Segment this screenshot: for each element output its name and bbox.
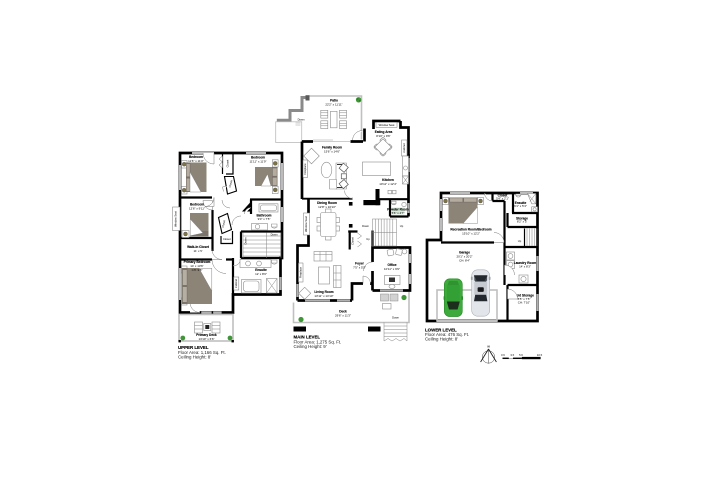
svg-text:Fireplace: Fireplace (299, 266, 303, 278)
svg-text:N: N (487, 345, 489, 349)
svg-text:22'2" x 11'11": 22'2" x 11'11" (325, 103, 342, 107)
svg-text:7'5" x 5'5": 7'5" x 5'5" (353, 266, 366, 270)
svg-text:Up: Up (400, 224, 404, 228)
svg-text:Window Seat: Window Seat (379, 123, 395, 127)
svg-text:5'6" x 4'7": 5'6" x 4'7" (392, 211, 405, 215)
svg-text:13'10" x 6'6": 13'10" x 6'6" (198, 337, 214, 341)
svg-text:Cabinet: Cabinet (234, 279, 238, 289)
svg-text:3 ft: 3 ft (510, 353, 514, 357)
svg-text:10 ft: 10 ft (537, 353, 542, 357)
svg-text:10'11" x 9'9": 10'11" x 9'9" (384, 267, 400, 271)
svg-text:12'6" x 9'11": 12'6" x 9'11" (189, 207, 205, 211)
svg-text:15'6" x 14'6": 15'6" x 14'6" (324, 150, 340, 154)
svg-text:Window Seat: Window Seat (174, 211, 178, 227)
svg-text:12'8" x 10'10": 12'8" x 10'10" (318, 205, 336, 209)
svg-text:Ceiling Height: 8': Ceiling Height: 8' (178, 355, 211, 360)
svg-text:Down: Down (271, 233, 278, 237)
svg-text:8'2" x 5': 8'2" x 5' (517, 220, 528, 224)
svg-text:Window Seat: Window Seat (304, 216, 308, 232)
svg-text:0 ft: 0 ft (501, 353, 505, 357)
svg-text:Closet: Closet (351, 237, 355, 245)
svg-text:CH: 8'4": CH: 8'4" (459, 259, 470, 263)
svg-text:11' x 5': 11' x 5' (194, 249, 203, 253)
svg-text:9'0" x 7'5": 9'0" x 7'5" (258, 217, 271, 221)
svg-text:CH: 7'10": CH: 7'10" (518, 301, 530, 305)
svg-text:Down: Down (362, 224, 369, 228)
svg-text:Ceiling Height: 8': Ceiling Height: 8' (425, 337, 458, 342)
svg-text:15'10" x 12'2": 15'10" x 12'2" (462, 232, 480, 236)
svg-text:Closet: Closet (226, 159, 230, 167)
svg-text:14' x 8'3": 14' x 8'3" (519, 265, 531, 269)
svg-text:29'6" x 11'3": 29'6" x 11'3" (335, 314, 351, 318)
svg-text:12' x 8'6": 12' x 8'6" (255, 272, 267, 276)
svg-text:11'6" x 11'0": 11'6" x 11'0" (188, 159, 204, 163)
svg-text:Down: Down (244, 237, 248, 244)
svg-text:Fireplace: Fireplace (303, 163, 307, 175)
svg-text:11'11" x 11'9": 11'11" x 11'9" (249, 160, 266, 164)
svg-text:8'10" x 9'6": 8'10" x 9'6" (376, 134, 390, 138)
svg-text:5 ft: 5 ft (519, 353, 523, 357)
svg-text:5'4" x 2'1": 5'4" x 2'1" (496, 197, 509, 201)
svg-text:Ceiling Height: 9': Ceiling Height: 9' (294, 344, 327, 349)
svg-text:Closet: Closet (223, 237, 231, 241)
svg-text:6'1" x 5'3": 6'1" x 5'3" (514, 204, 527, 208)
svg-text:13'11" x 13'10": 13'11" x 13'10" (314, 294, 333, 298)
svg-text:Cabinet: Cabinet (402, 143, 406, 153)
svg-text:Up: Up (366, 237, 370, 241)
svg-text:Down: Down (298, 118, 305, 122)
svg-text:10'11" x 12'4": 10'11" x 12'4" (379, 182, 397, 186)
svg-text:CH: 9'8": CH: 9'8" (192, 268, 203, 272)
svg-text:Up: Up (518, 239, 522, 243)
svg-text:Down: Down (392, 316, 399, 320)
